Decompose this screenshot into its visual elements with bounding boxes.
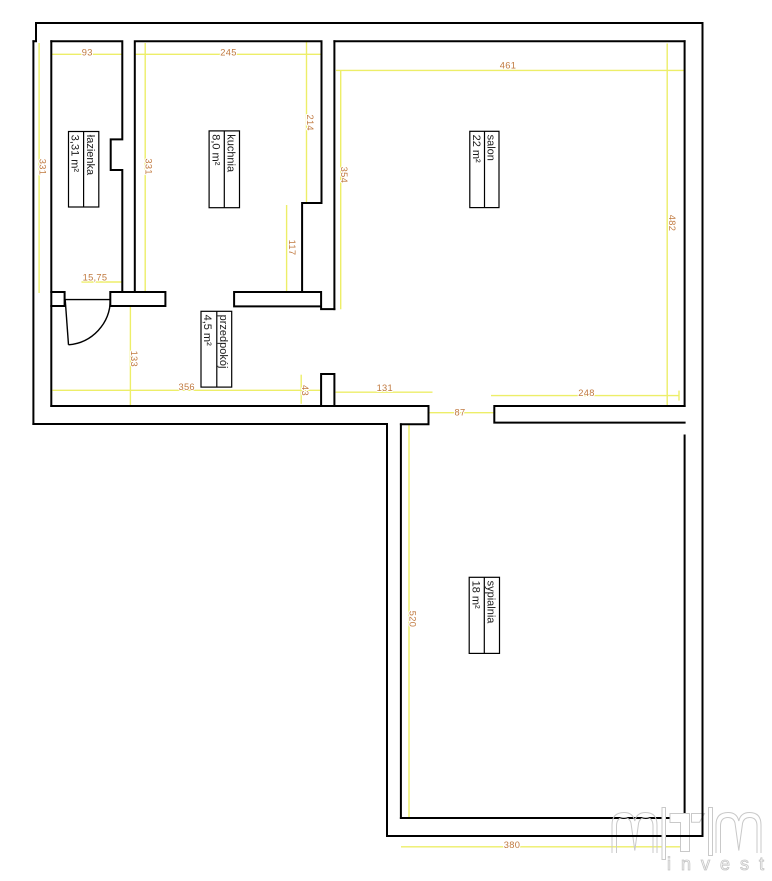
svg-text:131: 131 [377, 383, 393, 393]
svg-text:salon: salon [485, 135, 497, 161]
svg-text:43: 43 [300, 385, 310, 396]
svg-text:214: 214 [305, 114, 315, 130]
svg-text:22 m²: 22 m² [470, 135, 482, 163]
svg-text:sypialnia: sypialnia [485, 581, 497, 625]
svg-text:133: 133 [129, 351, 139, 367]
svg-text:93: 93 [82, 48, 93, 58]
svg-text:482: 482 [667, 215, 677, 231]
svg-text:354: 354 [339, 167, 349, 183]
svg-text:380: 380 [504, 840, 520, 850]
svg-text:117: 117 [287, 240, 297, 256]
svg-text:przedpokój: przedpokój [217, 315, 229, 369]
svg-text:18 m²: 18 m² [469, 581, 481, 609]
svg-text:4,5 m²: 4,5 m² [201, 315, 213, 347]
svg-text:248: 248 [578, 388, 594, 398]
svg-text:461: 461 [500, 60, 516, 70]
svg-text:87: 87 [455, 407, 466, 417]
svg-text:520: 520 [407, 611, 417, 627]
svg-text:3,31 m²: 3,31 m² [69, 135, 81, 173]
svg-text:245: 245 [220, 48, 236, 58]
svg-text:8,0 m²: 8,0 m² [209, 134, 221, 166]
svg-text:356: 356 [178, 382, 194, 392]
svg-text:331: 331 [144, 158, 154, 174]
svg-text:kuchnia: kuchnia [225, 134, 237, 173]
svg-text:331: 331 [38, 159, 48, 175]
svg-text:invest: invest [667, 854, 772, 874]
svg-text:15,75: 15,75 [83, 273, 108, 283]
svg-text:łazienka: łazienka [84, 135, 96, 176]
